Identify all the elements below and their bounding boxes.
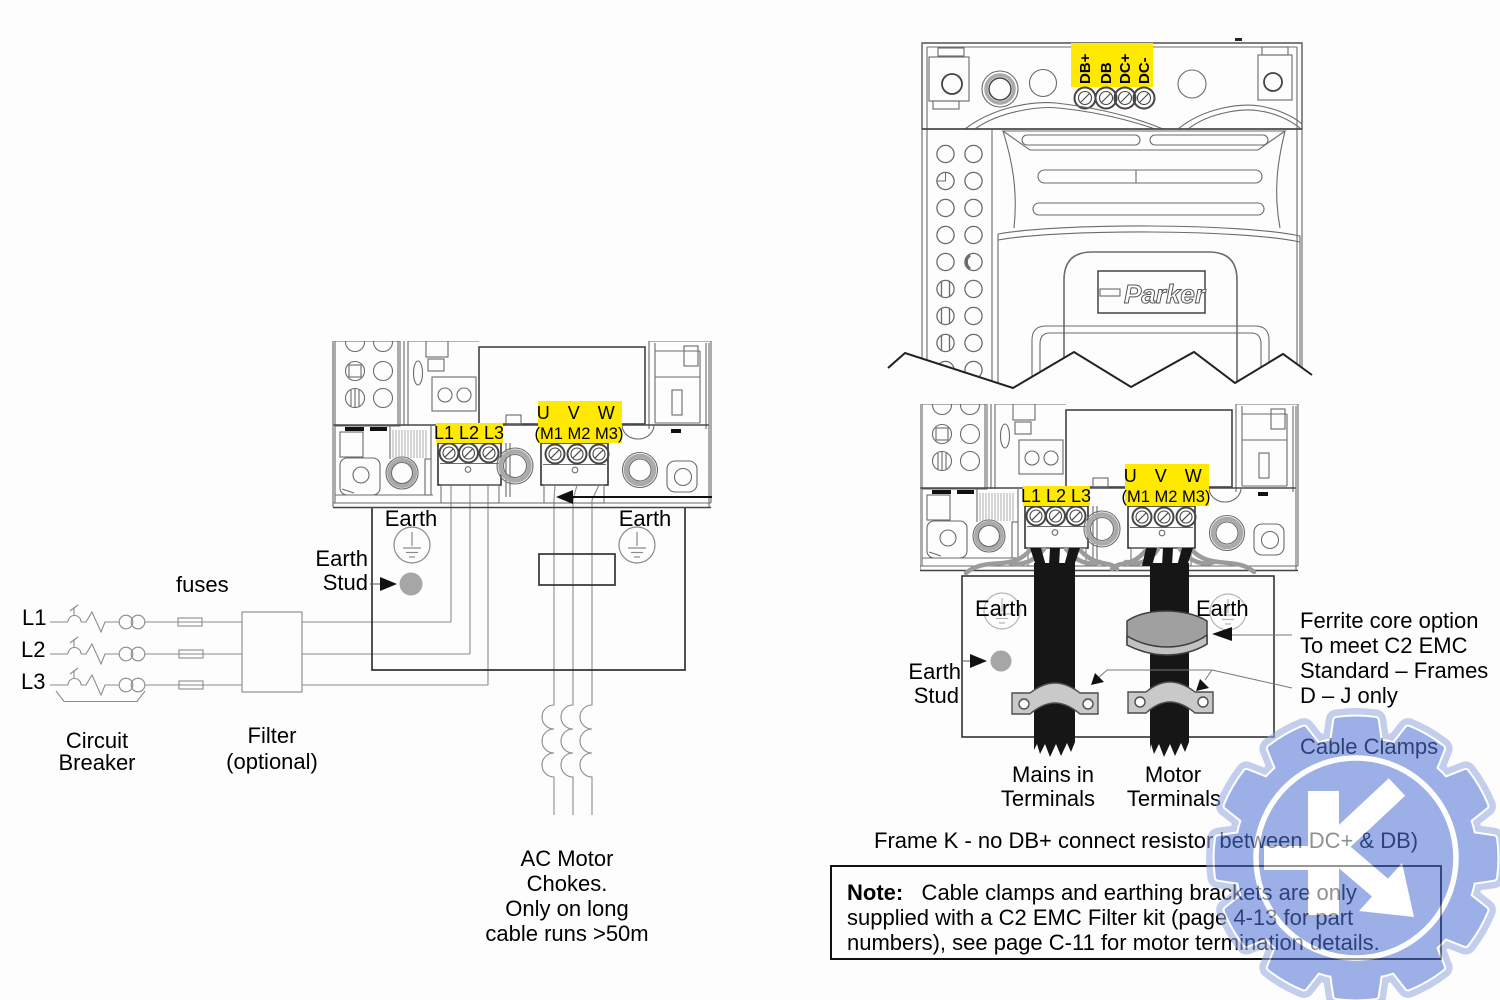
svg-text:Terminals: Terminals [1001, 786, 1095, 811]
svg-text:Earth: Earth [908, 659, 961, 684]
svg-text:Earth: Earth [619, 506, 672, 531]
svg-text:To meet C2 EMC: To meet C2 EMC [1300, 633, 1468, 658]
svg-text:Earth: Earth [1196, 596, 1249, 621]
svg-text:Parker: Parker [1124, 279, 1207, 309]
svg-text:Breaker: Breaker [58, 750, 135, 775]
svg-text:Earth: Earth [315, 546, 368, 571]
svg-text:AC Motor: AC Motor [521, 846, 614, 871]
svg-text:Earth: Earth [975, 596, 1028, 621]
svg-text:Only on long: Only on long [505, 896, 629, 921]
svg-text:Standard – Frames: Standard – Frames [1300, 658, 1488, 683]
svg-text:DC+: DC+ [1117, 53, 1134, 84]
svg-text:DB+: DB+ [1077, 53, 1094, 84]
svg-text:DC-: DC- [1136, 57, 1153, 84]
svg-text:(optional): (optional) [226, 749, 318, 774]
svg-text:Motor: Motor [1145, 762, 1201, 787]
svg-text:L3: L3 [21, 669, 45, 694]
svg-text:Stud: Stud [914, 683, 959, 708]
svg-text:DB: DB [1098, 62, 1115, 84]
svg-text:fuses: fuses [176, 572, 229, 597]
svg-text:Chokes.: Chokes. [527, 871, 608, 896]
svg-text:Filter: Filter [248, 723, 297, 748]
svg-text:L2: L2 [21, 637, 45, 662]
svg-text:Mains in: Mains in [1012, 762, 1094, 787]
svg-text:D – J only: D – J only [1300, 683, 1398, 708]
svg-text:cable runs >50m: cable runs >50m [485, 921, 648, 946]
svg-text:Earth: Earth [385, 506, 438, 531]
svg-text:Ferrite core option: Ferrite core option [1300, 608, 1479, 633]
svg-text:Stud: Stud [323, 570, 368, 595]
svg-text:Terminals: Terminals [1127, 786, 1221, 811]
svg-text:L1: L1 [22, 605, 46, 630]
